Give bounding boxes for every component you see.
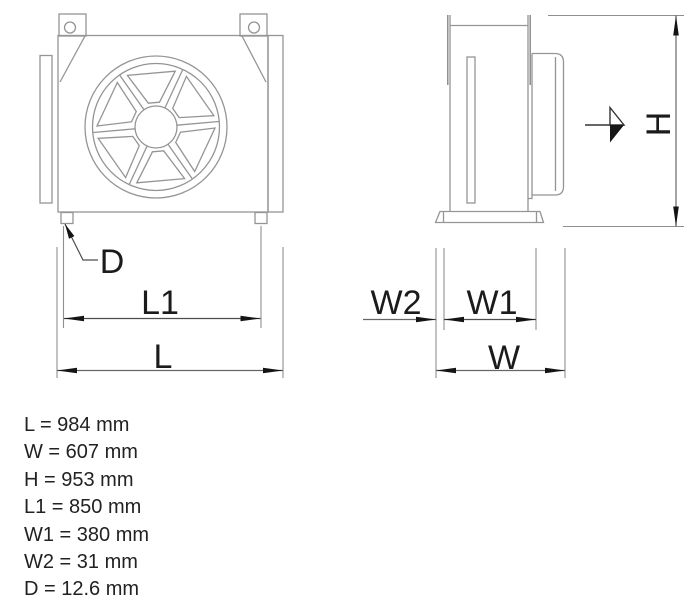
bracket-hole-left xyxy=(65,22,76,33)
fan-blade xyxy=(98,136,139,177)
dim-label-w: W xyxy=(482,340,526,376)
spec-row-h: H = 953 mm xyxy=(24,467,149,494)
spec-row-l: L = 984 mm xyxy=(24,412,149,439)
fan-blade xyxy=(127,71,175,103)
dimension-spec-list: L = 984 mm W = 607 mm H = 953 mm L1 = 85… xyxy=(24,412,149,604)
side-base xyxy=(436,212,544,223)
fan-ring-inner xyxy=(93,64,220,191)
front-foot-left xyxy=(61,213,73,224)
bracket-hole-right xyxy=(249,22,260,33)
side-view xyxy=(436,15,564,223)
front-left-panel xyxy=(40,56,52,204)
d-leader-arrowhead xyxy=(65,224,74,239)
dim-label-w2: W2 xyxy=(364,285,428,321)
spec-row-w1: W1 = 380 mm xyxy=(24,522,149,549)
dim-label-w1: W1 xyxy=(460,285,524,321)
fan-blade xyxy=(176,128,215,172)
dim-label-l: L xyxy=(141,339,185,375)
extension-lines xyxy=(57,16,684,379)
fan-hub xyxy=(135,106,177,148)
fan-shroud-side xyxy=(529,54,564,199)
dimension-drawing-page: D L1 L W2 W1 W H L = 984 mm W = 607 mm H… xyxy=(0,0,700,608)
mount-bracket-left xyxy=(59,14,86,82)
spec-row-l1: L1 = 850 mm xyxy=(24,494,149,521)
fan-blade xyxy=(97,83,136,127)
airflow-direction-arrow xyxy=(585,108,624,143)
fan-ring-outer xyxy=(85,56,227,198)
front-foot-right xyxy=(255,213,267,224)
front-right-plate xyxy=(268,36,283,213)
fan-front xyxy=(85,56,227,198)
mount-bracket-right xyxy=(240,14,267,82)
spec-row-d: D = 12.6 mm xyxy=(24,576,149,603)
front-frame xyxy=(58,36,268,213)
side-slot xyxy=(467,57,475,203)
front-view xyxy=(40,14,283,224)
spec-row-w: W = 607 mm xyxy=(24,439,149,466)
spec-row-w2: W2 = 31 mm xyxy=(24,549,149,576)
dim-label-d: D xyxy=(92,244,132,280)
fan-blade xyxy=(137,151,185,183)
dim-label-l1: L1 xyxy=(128,285,192,321)
fan-blade xyxy=(173,76,214,117)
dim-label-h: H xyxy=(641,106,677,142)
